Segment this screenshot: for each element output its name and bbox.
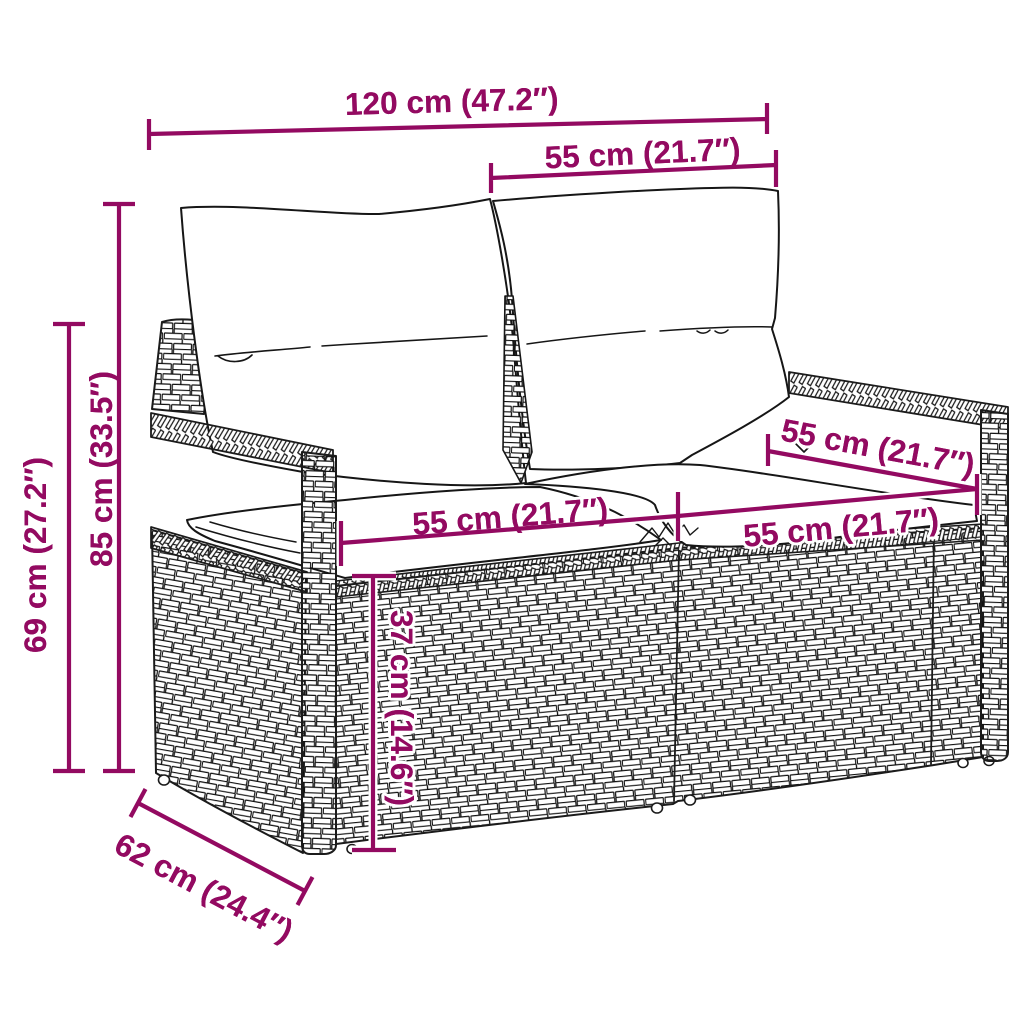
svg-text:85 cm (33.5″): 85 cm (33.5″) xyxy=(83,371,119,567)
svg-text:120 cm (47.2″): 120 cm (47.2″) xyxy=(344,80,559,122)
svg-text:69 cm (27.2″): 69 cm (27.2″) xyxy=(17,457,53,653)
svg-text:37 cm (14.6″): 37 cm (14.6″) xyxy=(384,610,420,806)
